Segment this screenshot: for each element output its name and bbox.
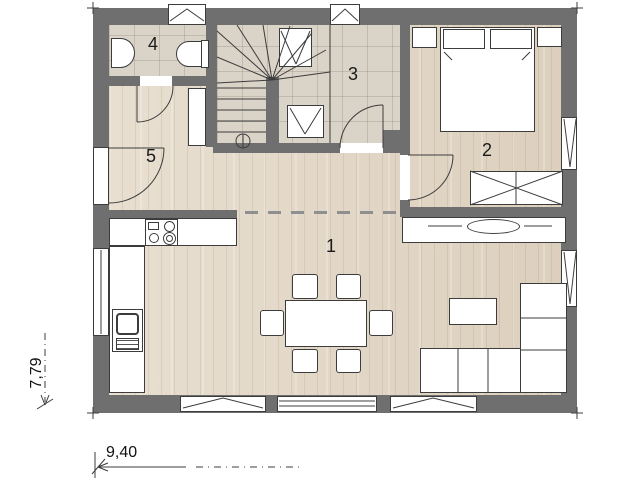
window-bottom-1: [180, 396, 266, 412]
window-right-1: [561, 117, 577, 170]
wall-left: [93, 8, 109, 413]
dimension-vertical: 7,79: [28, 350, 46, 396]
chair-top-2: [336, 274, 361, 299]
dining-table: [285, 300, 367, 347]
wall-bedroom-bottom: [400, 207, 561, 217]
wall-under-stairs: [213, 143, 340, 153]
wall-bath-bottom-left: [109, 76, 140, 86]
toilet-bowl: [176, 41, 202, 67]
sofa-right-arm: [520, 283, 567, 393]
window-bottom-3: [390, 396, 477, 412]
window-top-2: [330, 4, 360, 25]
nightstand-right: [537, 27, 562, 47]
wall-stair-spine: [266, 77, 279, 143]
stove-burner-3-inner-ring: [166, 235, 173, 242]
wall-bedroom-left: [400, 25, 410, 155]
sink-basin: [116, 313, 139, 335]
window-left: [93, 248, 109, 336]
stair-landing-lower: [287, 105, 324, 138]
window-bottom-2: [277, 396, 377, 412]
wall-kitchen-divider: [109, 210, 237, 218]
wall-bath-bottom-right: [172, 76, 206, 86]
toilet-tank: [201, 40, 209, 68]
stair-landing-upper: [279, 28, 312, 67]
room-label-bedroom: 2: [482, 140, 492, 161]
pillow-right: [490, 29, 532, 49]
hall-door-opening: [340, 143, 383, 153]
window-top-1: [168, 4, 206, 25]
room-label-bathroom: 4: [148, 34, 158, 55]
chair-right: [369, 310, 393, 336]
entrance-door-opening: [93, 147, 109, 205]
stair-open-door-leaf: [188, 88, 206, 146]
bedroom-door-opening: [400, 155, 410, 200]
room-label-entrance: 5: [146, 146, 156, 167]
open-passage-dashed-line: [245, 211, 398, 214]
room-label-stair-hall: 3: [348, 64, 358, 85]
sink-unit-grill: [116, 338, 139, 350]
pillow-left: [443, 29, 485, 49]
tv: [467, 219, 520, 234]
dimension-horizontal: 9,40: [106, 444, 137, 462]
chair-bottom-2: [336, 349, 361, 373]
nightstand-left: [412, 27, 437, 48]
floor-plan: 1 2 3 4 5 7,79 9,40: [0, 0, 640, 480]
wardrobe: [470, 171, 563, 205]
room-label-living: 1: [326, 236, 336, 257]
chair-bottom-1: [292, 349, 318, 373]
wall-hall-door-stub: [383, 130, 400, 153]
sofa-bottom-seat: [420, 348, 521, 393]
chair-top-1: [292, 274, 318, 299]
stove-burner-1: [164, 221, 175, 232]
stove-burner-2: [149, 233, 159, 243]
chair-left: [260, 310, 284, 336]
coffee-table: [449, 298, 497, 325]
stove-control-panel: [148, 222, 159, 230]
bathroom-door-opening: [140, 76, 172, 86]
